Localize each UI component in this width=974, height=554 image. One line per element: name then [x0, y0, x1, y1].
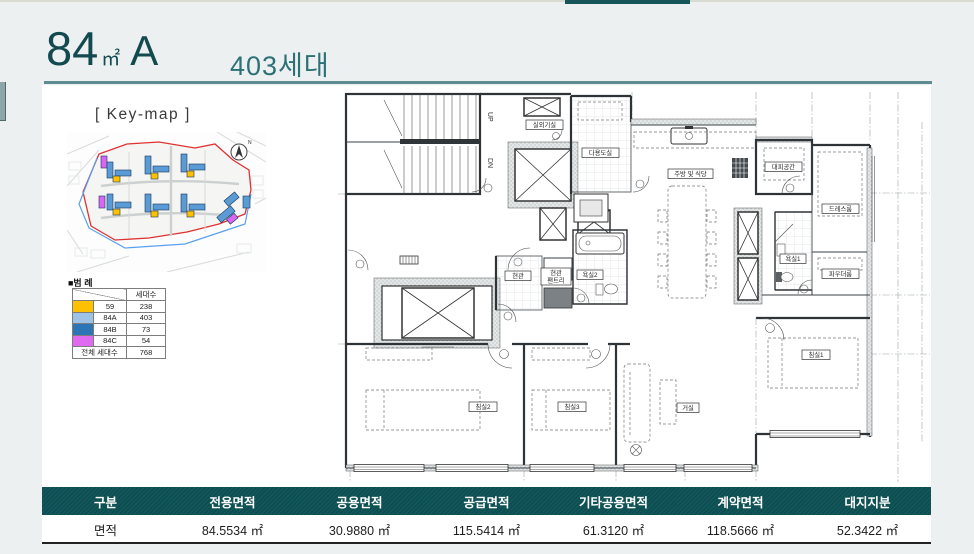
area-col-header: 기타공용면적 [550, 487, 677, 516]
svg-text:파우더룸: 파우더룸 [829, 269, 852, 278]
utility-room [571, 96, 649, 222]
title-underline [44, 81, 932, 84]
legend-type: 84C [94, 335, 127, 347]
area-table-header-row: 구분 전용면적 공용면적 공급면적 기타공용면적 계약면적 대지지분 [42, 487, 931, 516]
room-label-outdoor-unit: 실외기실 [526, 120, 563, 130]
area-value: 52.3422 ㎡ [804, 516, 931, 543]
legend-swatch-84c [73, 335, 94, 347]
legend-total-row: 전체 세대수 768 [73, 347, 166, 359]
right-wing-walls [756, 145, 875, 437]
area-value: 118.5666 ㎡ [677, 516, 804, 543]
legend-swatch-84a [73, 312, 94, 324]
svg-text:실외기실: 실외기실 [533, 120, 556, 129]
stair-dn-label: DN [486, 158, 493, 168]
keymap-title: [ Key-map ] [95, 106, 191, 124]
legend-row: 84B 73 [73, 324, 166, 336]
households-count: 403세대 [230, 44, 330, 83]
floor-plan: UP DN [338, 92, 934, 482]
room-label-bath1: 욕실1 [780, 254, 806, 264]
room-label-pantry: 현관팬트리 [541, 268, 571, 285]
legend-row: 84C 54 [73, 335, 166, 347]
area-value: 115.5414 ㎡ [423, 516, 550, 543]
room-label-bed3: 침실3 [558, 402, 586, 412]
room-label-bath2: 욕실2 [577, 270, 603, 280]
entrance-zone [496, 256, 572, 322]
left-edge-tab [0, 82, 6, 121]
bottom-wall-windows [346, 465, 758, 472]
title-area-number: 84 [46, 22, 98, 75]
area-row-label: 면적 [42, 516, 169, 543]
area-value: 61.3120 ㎡ [550, 516, 677, 543]
area-col-header: 공급면적 [423, 487, 550, 516]
legend-swatch-84b [73, 324, 94, 336]
stair-up-label: UP [486, 112, 493, 122]
svg-text:현관: 현관 [550, 268, 562, 277]
room-label-shelter: 대피공간 [765, 162, 802, 172]
legend-type: 84B [94, 324, 127, 336]
legend-type: 59 [94, 301, 127, 313]
keymap-site-plan: N [67, 132, 266, 272]
legend-row: 84A 403 [73, 312, 166, 324]
legend-total-value: 768 [127, 347, 166, 359]
svg-text:팬트리: 팬트리 [547, 276, 564, 285]
top-accent-bar [565, 0, 690, 4]
legend-diagonal-cell [73, 289, 127, 301]
title-area-unit: ㎡ [101, 49, 120, 70]
room-label-bed1: 침실1 [802, 350, 830, 360]
legend-swatch-59 [73, 301, 94, 313]
legend-table: 세대수 59 238 84A 403 84B 73 84C 54 전체 세대수 … [72, 288, 166, 359]
svg-text:다용도실: 다용도실 [589, 148, 612, 157]
svg-text:침실1: 침실1 [808, 350, 824, 359]
legend-count: 54 [127, 335, 166, 347]
room-label-powder: 파우더룸 [822, 269, 859, 279]
stairwell: UP DN [346, 94, 493, 194]
title-type-letter: A [130, 27, 158, 74]
legend-type: 84A [94, 312, 127, 324]
top-border-line [0, 0, 974, 2]
room-label-entrance: 현관 [505, 271, 531, 281]
legend-count: 73 [127, 324, 166, 336]
legend-header-row: 세대수 [73, 289, 166, 301]
area-col-header: 대지지분 [804, 487, 931, 516]
legend-count: 238 [127, 301, 166, 313]
area-col-header: 공용면적 [296, 487, 423, 516]
room-label-kitchen: 주방 및 식당 [668, 169, 713, 179]
room-label-dressroom: 드레스룸 [822, 204, 859, 214]
area-value: 84.5534 ㎡ [169, 516, 296, 543]
area-table: 구분 전용면적 공용면적 공급면적 기타공용면적 계약면적 대지지분 면적 84… [42, 487, 931, 544]
svg-text:현관: 현관 [512, 271, 524, 280]
room-label-living: 거실 [677, 403, 699, 413]
svg-text:드레스룸: 드레스룸 [829, 204, 852, 213]
legend-row: 59 238 [73, 301, 166, 313]
legend-count: 403 [127, 312, 166, 324]
svg-text:침실3: 침실3 [564, 402, 580, 411]
svg-text:주방 및 식당: 주방 및 식당 [674, 169, 707, 178]
room-label-bed2: 침실2 [469, 402, 497, 412]
area-col-header: 구분 [42, 487, 169, 516]
legend-total-label: 전체 세대수 [73, 347, 127, 359]
bathroom2 [573, 230, 627, 304]
area-table-data-row: 면적 84.5534 ㎡ 30.9880 ㎡ 115.5414 ㎡ 61.312… [42, 516, 931, 543]
svg-text:욕실1: 욕실1 [785, 254, 801, 263]
room-label-utility: 다용도실 [582, 148, 619, 158]
slide: 84㎡A 403세대 [ Key-map ] [0, 0, 974, 554]
svg-text:거실: 거실 [682, 403, 694, 412]
page-title: 84㎡A [46, 20, 158, 78]
svg-text:N: N [248, 140, 252, 146]
area-value: 30.9880 ㎡ [296, 516, 423, 543]
legend-count-header: 세대수 [127, 289, 166, 301]
svg-text:욕실2: 욕실2 [582, 270, 598, 279]
svg-text:침실2: 침실2 [475, 402, 491, 411]
area-col-header: 계약면적 [677, 487, 804, 516]
svg-text:대피공간: 대피공간 [772, 162, 795, 171]
area-col-header: 전용면적 [169, 487, 296, 516]
